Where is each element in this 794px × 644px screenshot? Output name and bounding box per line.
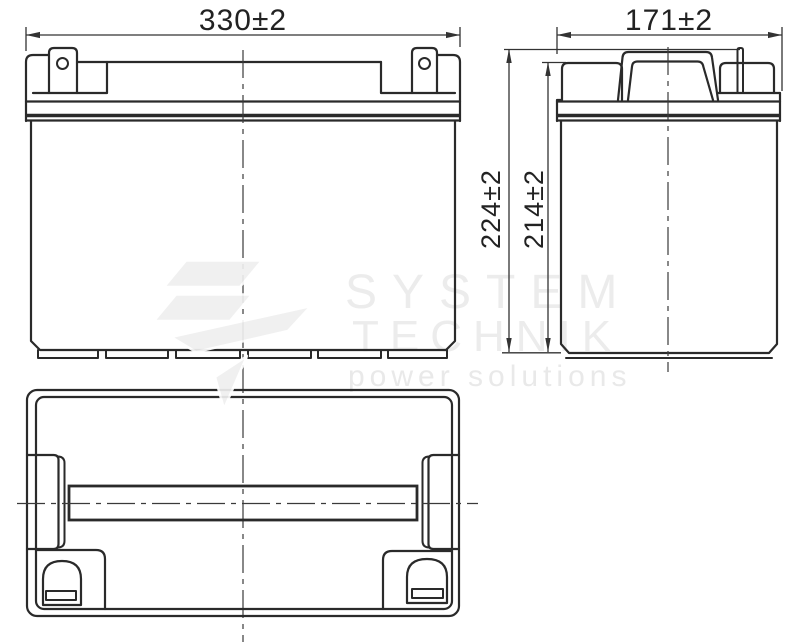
front-lid-right-edge: [437, 55, 460, 121]
front-lid-left-edge: [26, 55, 49, 121]
side-lid-left-block: [562, 63, 622, 100]
side-lid-right-block: [720, 63, 774, 93]
right-terminal-dome: [407, 559, 447, 603]
right-terminal-slot: [412, 589, 443, 598]
front-right-terminal-recess: [381, 62, 455, 93]
left-terminal-dome: [43, 561, 81, 605]
watermark: SYSTEM TECHNIK power solutions: [345, 266, 632, 393]
watermark-tagline: power solutions: [348, 360, 631, 393]
battery-dimension-drawing: SYSTEM TECHNIK power solutions 330±2: [0, 0, 794, 644]
logo-bar-middle: [154, 295, 252, 322]
overall-height-dimension-label: 224±2: [476, 169, 506, 249]
front-left-terminal: [49, 48, 77, 93]
logo-bar-top: [164, 261, 262, 288]
front-width-dimension-label: 330±2: [199, 4, 287, 37]
side-width-dimension-label: 171±2: [625, 4, 713, 37]
right-handle-bracket: [423, 455, 460, 549]
front-right-terminal-bolt-hole: [419, 58, 430, 69]
left-handle-bracket: [27, 455, 65, 549]
front-left-terminal-bolt-hole: [57, 58, 68, 69]
top-view: [17, 390, 478, 616]
case-height-dimension-label: 214±2: [519, 169, 549, 249]
drawing-svg: SYSTEM TECHNIK power solutions 330±2: [0, 0, 794, 644]
logo-swoosh-tail: [215, 356, 247, 409]
front-left-terminal-recess: [33, 62, 107, 93]
watermark-logo: [154, 261, 311, 410]
left-terminal-slot: [46, 591, 76, 600]
side-terminal-post: [738, 48, 744, 93]
front-right-terminal: [412, 48, 437, 93]
